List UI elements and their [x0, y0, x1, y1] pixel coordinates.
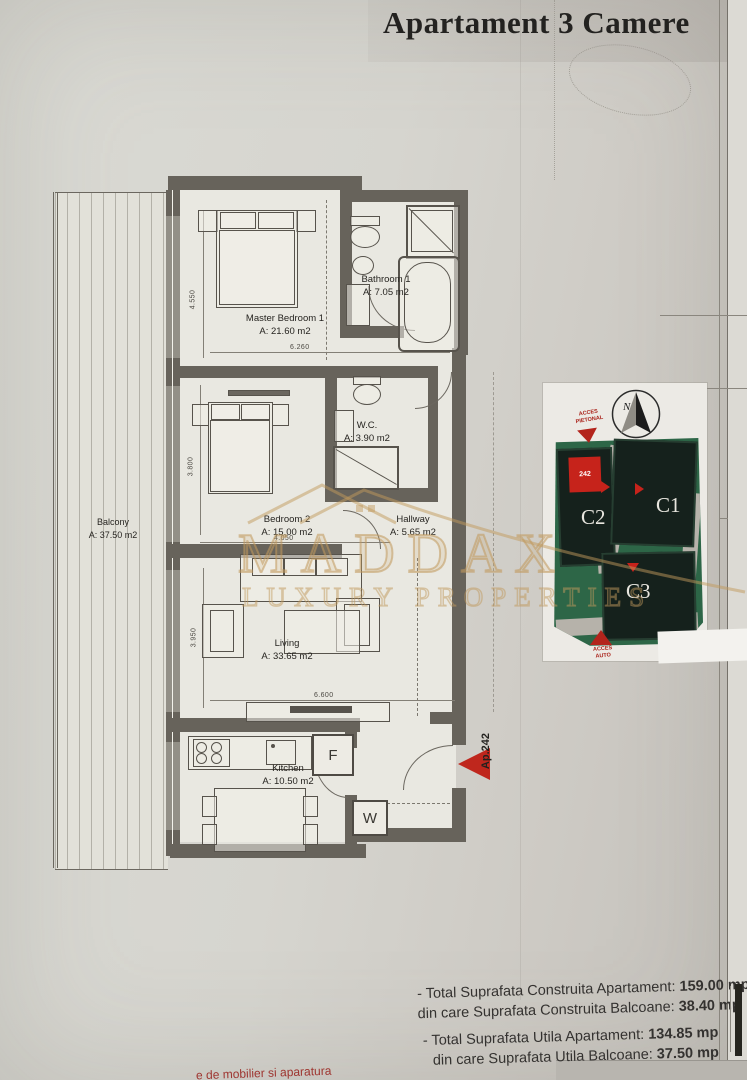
wall [178, 366, 436, 378]
wall [352, 190, 468, 202]
unit-marker: 242 [568, 456, 601, 492]
wall [168, 176, 362, 190]
room-label-hallway: Hallway A: 5.65 m2 [390, 513, 436, 540]
room-name: Bedroom 2 [261, 513, 312, 526]
room-label-living: Living A: 33.65 m2 [261, 637, 312, 664]
dashed-line [493, 372, 494, 712]
page-margin-bar [735, 984, 742, 1056]
frame-line [660, 315, 747, 316]
pillow [258, 212, 294, 229]
nightstand [198, 210, 218, 232]
burner [196, 742, 207, 753]
nightstand [192, 404, 209, 426]
site-arrow-icon [627, 563, 639, 572]
dim-line [200, 542, 390, 543]
room-label-wc: W.C. A: 3.90 m2 [344, 419, 390, 446]
site-arrow-icon [635, 483, 644, 495]
dining-table [214, 788, 306, 852]
facade-wall [166, 190, 180, 856]
chair [303, 796, 318, 817]
dim-line [203, 210, 204, 358]
frame-line [719, 0, 720, 1080]
room-area: A: 3.90 m2 [344, 432, 390, 445]
room-label-balcony: Balcony A: 37.50 m2 [89, 516, 138, 541]
unit-marker-label: 242 [579, 471, 591, 478]
nightstand [272, 404, 289, 426]
room-label-master: Master Bedroom 1 A: 21.60 m2 [246, 312, 324, 339]
totals-block: - Total Suprafata Construita Apartament:… [417, 976, 719, 1071]
dashed-line [417, 558, 418, 716]
dim-label: 3.800 [187, 457, 194, 477]
facade-pillar [166, 190, 180, 216]
wall [325, 488, 436, 502]
site-arrow-icon [601, 481, 610, 493]
compass-icon: N [610, 388, 662, 440]
total-usable-value: 134.85 mp [648, 1025, 719, 1043]
mattress [210, 420, 270, 492]
compass-north-label: N [622, 401, 631, 413]
chair [303, 824, 318, 845]
page-title: Apartament 3 Camere [383, 6, 743, 40]
toilet [353, 384, 381, 405]
balcony-railing [57, 192, 58, 868]
access-pedestrian-label: ACCES PIETONAL [570, 407, 608, 426]
sofa-cushion [316, 558, 348, 576]
building-c1-label: C1 [656, 493, 681, 518]
wall [452, 348, 466, 745]
armchair-seat [210, 610, 234, 652]
room-name: Living [261, 637, 312, 650]
built-balcony-value: 38.40 mp [679, 997, 742, 1015]
usable-balcony-value: 37.50 mp [657, 1045, 720, 1063]
mattress [219, 230, 295, 305]
faucet-dot [271, 744, 275, 748]
washer-label: W [363, 810, 377, 827]
room-area: A: 37.50 m2 [89, 529, 138, 542]
room-label-kitchen: Kitchen A: 10.50 m2 [262, 762, 313, 789]
sofa-cushion [252, 558, 284, 576]
toilet [350, 226, 380, 248]
room-name: Balcony [89, 516, 138, 529]
room-label-bedroom2: Bedroom 2 A: 15.00 m2 [261, 513, 312, 540]
sofa-cushion [284, 558, 316, 576]
dim-label: 4.550 [189, 290, 196, 310]
access-pedestrian-arrow-icon [577, 428, 599, 445]
room-area: A: 33.65 m2 [261, 650, 312, 663]
shelf [228, 390, 290, 396]
nightstand [296, 210, 316, 232]
fridge-label: F [328, 747, 337, 764]
bathtub-inner [404, 262, 451, 343]
footnote-fragment: e de mobilier si aparatura [196, 1064, 332, 1080]
room-label-bathroom: Bathroom 1 A: 7.05 m2 [361, 273, 410, 300]
room-name: W.C. [344, 419, 390, 432]
dim-line [210, 700, 455, 701]
pillow [211, 404, 240, 420]
dim-label: 6.600 [314, 692, 334, 699]
fridge-box: F [312, 734, 354, 776]
toilet-tank [350, 216, 380, 226]
access-auto-arrow-icon [590, 630, 612, 645]
access-auto-label: ACCES AUTO [589, 645, 616, 661]
dashed-line [326, 200, 327, 360]
page-edge-strip [728, 0, 747, 1080]
wall [430, 712, 466, 724]
page-margin-line [730, 986, 731, 1052]
room-name: Master Bedroom 1 [246, 312, 324, 325]
room-area: A: 7.05 m2 [361, 286, 410, 299]
building-c2-label: C2 [581, 505, 606, 530]
tv [290, 706, 352, 713]
chair [202, 824, 217, 845]
room-area: A: 5.65 m2 [390, 526, 436, 539]
frame-line [705, 388, 747, 389]
usable-balcony-label: din care Suprafata Utila Balcoane: [433, 1047, 657, 1069]
fold-line [520, 0, 521, 1000]
room-area: A: 10.50 m2 [262, 775, 313, 788]
burner [211, 742, 222, 753]
scanned-floor-plan-page: Apartament 3 Camere 4.550 6.260 [0, 0, 747, 1080]
building-c3-label: C3 [626, 579, 651, 604]
burner [196, 753, 207, 764]
room-name: Kitchen [262, 762, 313, 775]
building-c1 [610, 439, 698, 548]
dim-line [210, 352, 450, 353]
wall [340, 326, 404, 338]
frame-line [719, 518, 728, 519]
dim-label: 3.950 [190, 628, 197, 648]
washer-box: W [352, 800, 388, 836]
balcony-railing [53, 192, 54, 868]
chair [202, 796, 217, 817]
facade-glazing [172, 190, 173, 856]
site-plan: N ACCES PIETONAL C1 C2 C3 242 ACCES AUTO [543, 383, 707, 661]
pillow [241, 404, 270, 420]
dim-label: 6.260 [290, 344, 310, 351]
room-name: Bathroom 1 [361, 273, 410, 286]
room-name: Hallway [390, 513, 436, 526]
white-patch [657, 628, 747, 663]
frame-line [727, 0, 728, 1080]
room-area: A: 15.00 m2 [261, 526, 312, 539]
burner [211, 753, 222, 764]
apartment-number: Ap.242 [480, 733, 492, 769]
pillow [220, 212, 256, 229]
room-area: A: 21.60 m2 [246, 325, 324, 338]
